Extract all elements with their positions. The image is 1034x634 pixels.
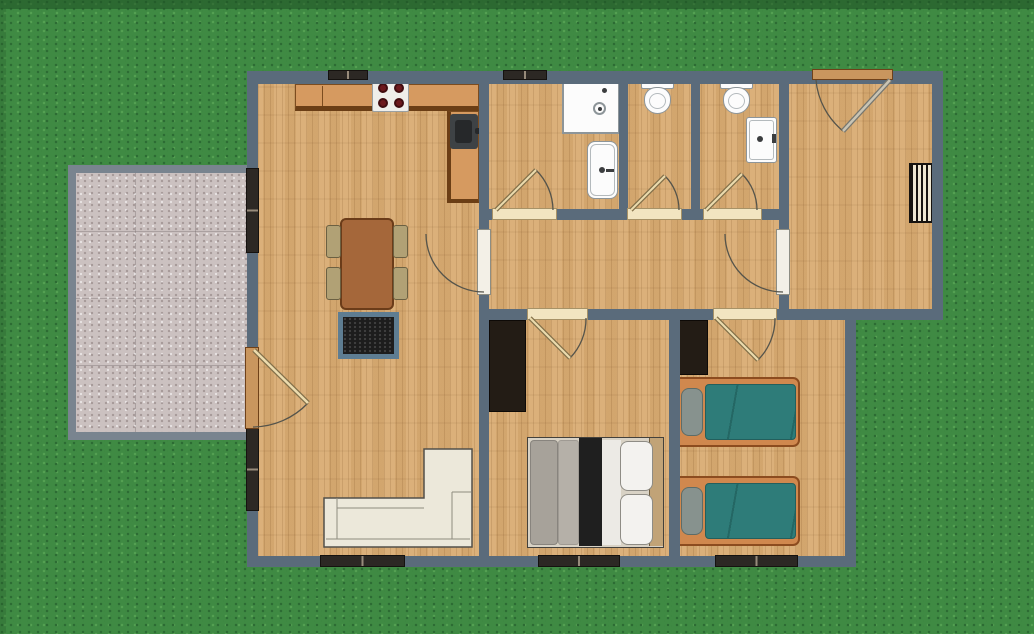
wc2-door-swing[interactable] — [706, 174, 757, 210]
hallway-west-door-swing[interactable] — [426, 234, 484, 292]
hallway-east-door-swing[interactable] — [725, 234, 783, 292]
patio-door-swing[interactable] — [253, 350, 308, 427]
wc1-door-swing[interactable] — [631, 176, 679, 210]
floor-plan-canvas — [0, 0, 1034, 634]
bedroom1-door-swing[interactable] — [530, 318, 586, 358]
bathroom-door-swing[interactable] — [496, 170, 553, 210]
vector-overlay — [0, 0, 1034, 634]
front-door-swing[interactable] — [816, 80, 890, 131]
corner-sofa[interactable] — [324, 449, 472, 547]
bedroom2-door-swing[interactable] — [716, 318, 775, 360]
